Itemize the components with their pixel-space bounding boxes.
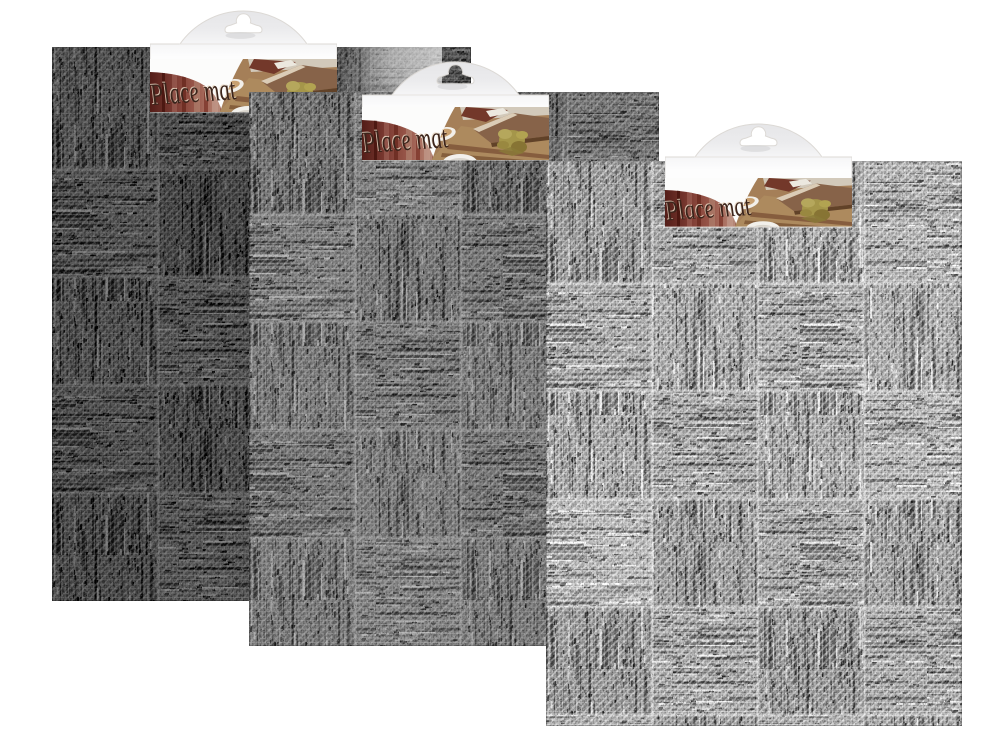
svg-text:Place mat: Place mat [150, 72, 240, 112]
svg-text:Place mat: Place mat [665, 190, 755, 227]
svg-text:Place mat: Place mat [362, 120, 452, 160]
